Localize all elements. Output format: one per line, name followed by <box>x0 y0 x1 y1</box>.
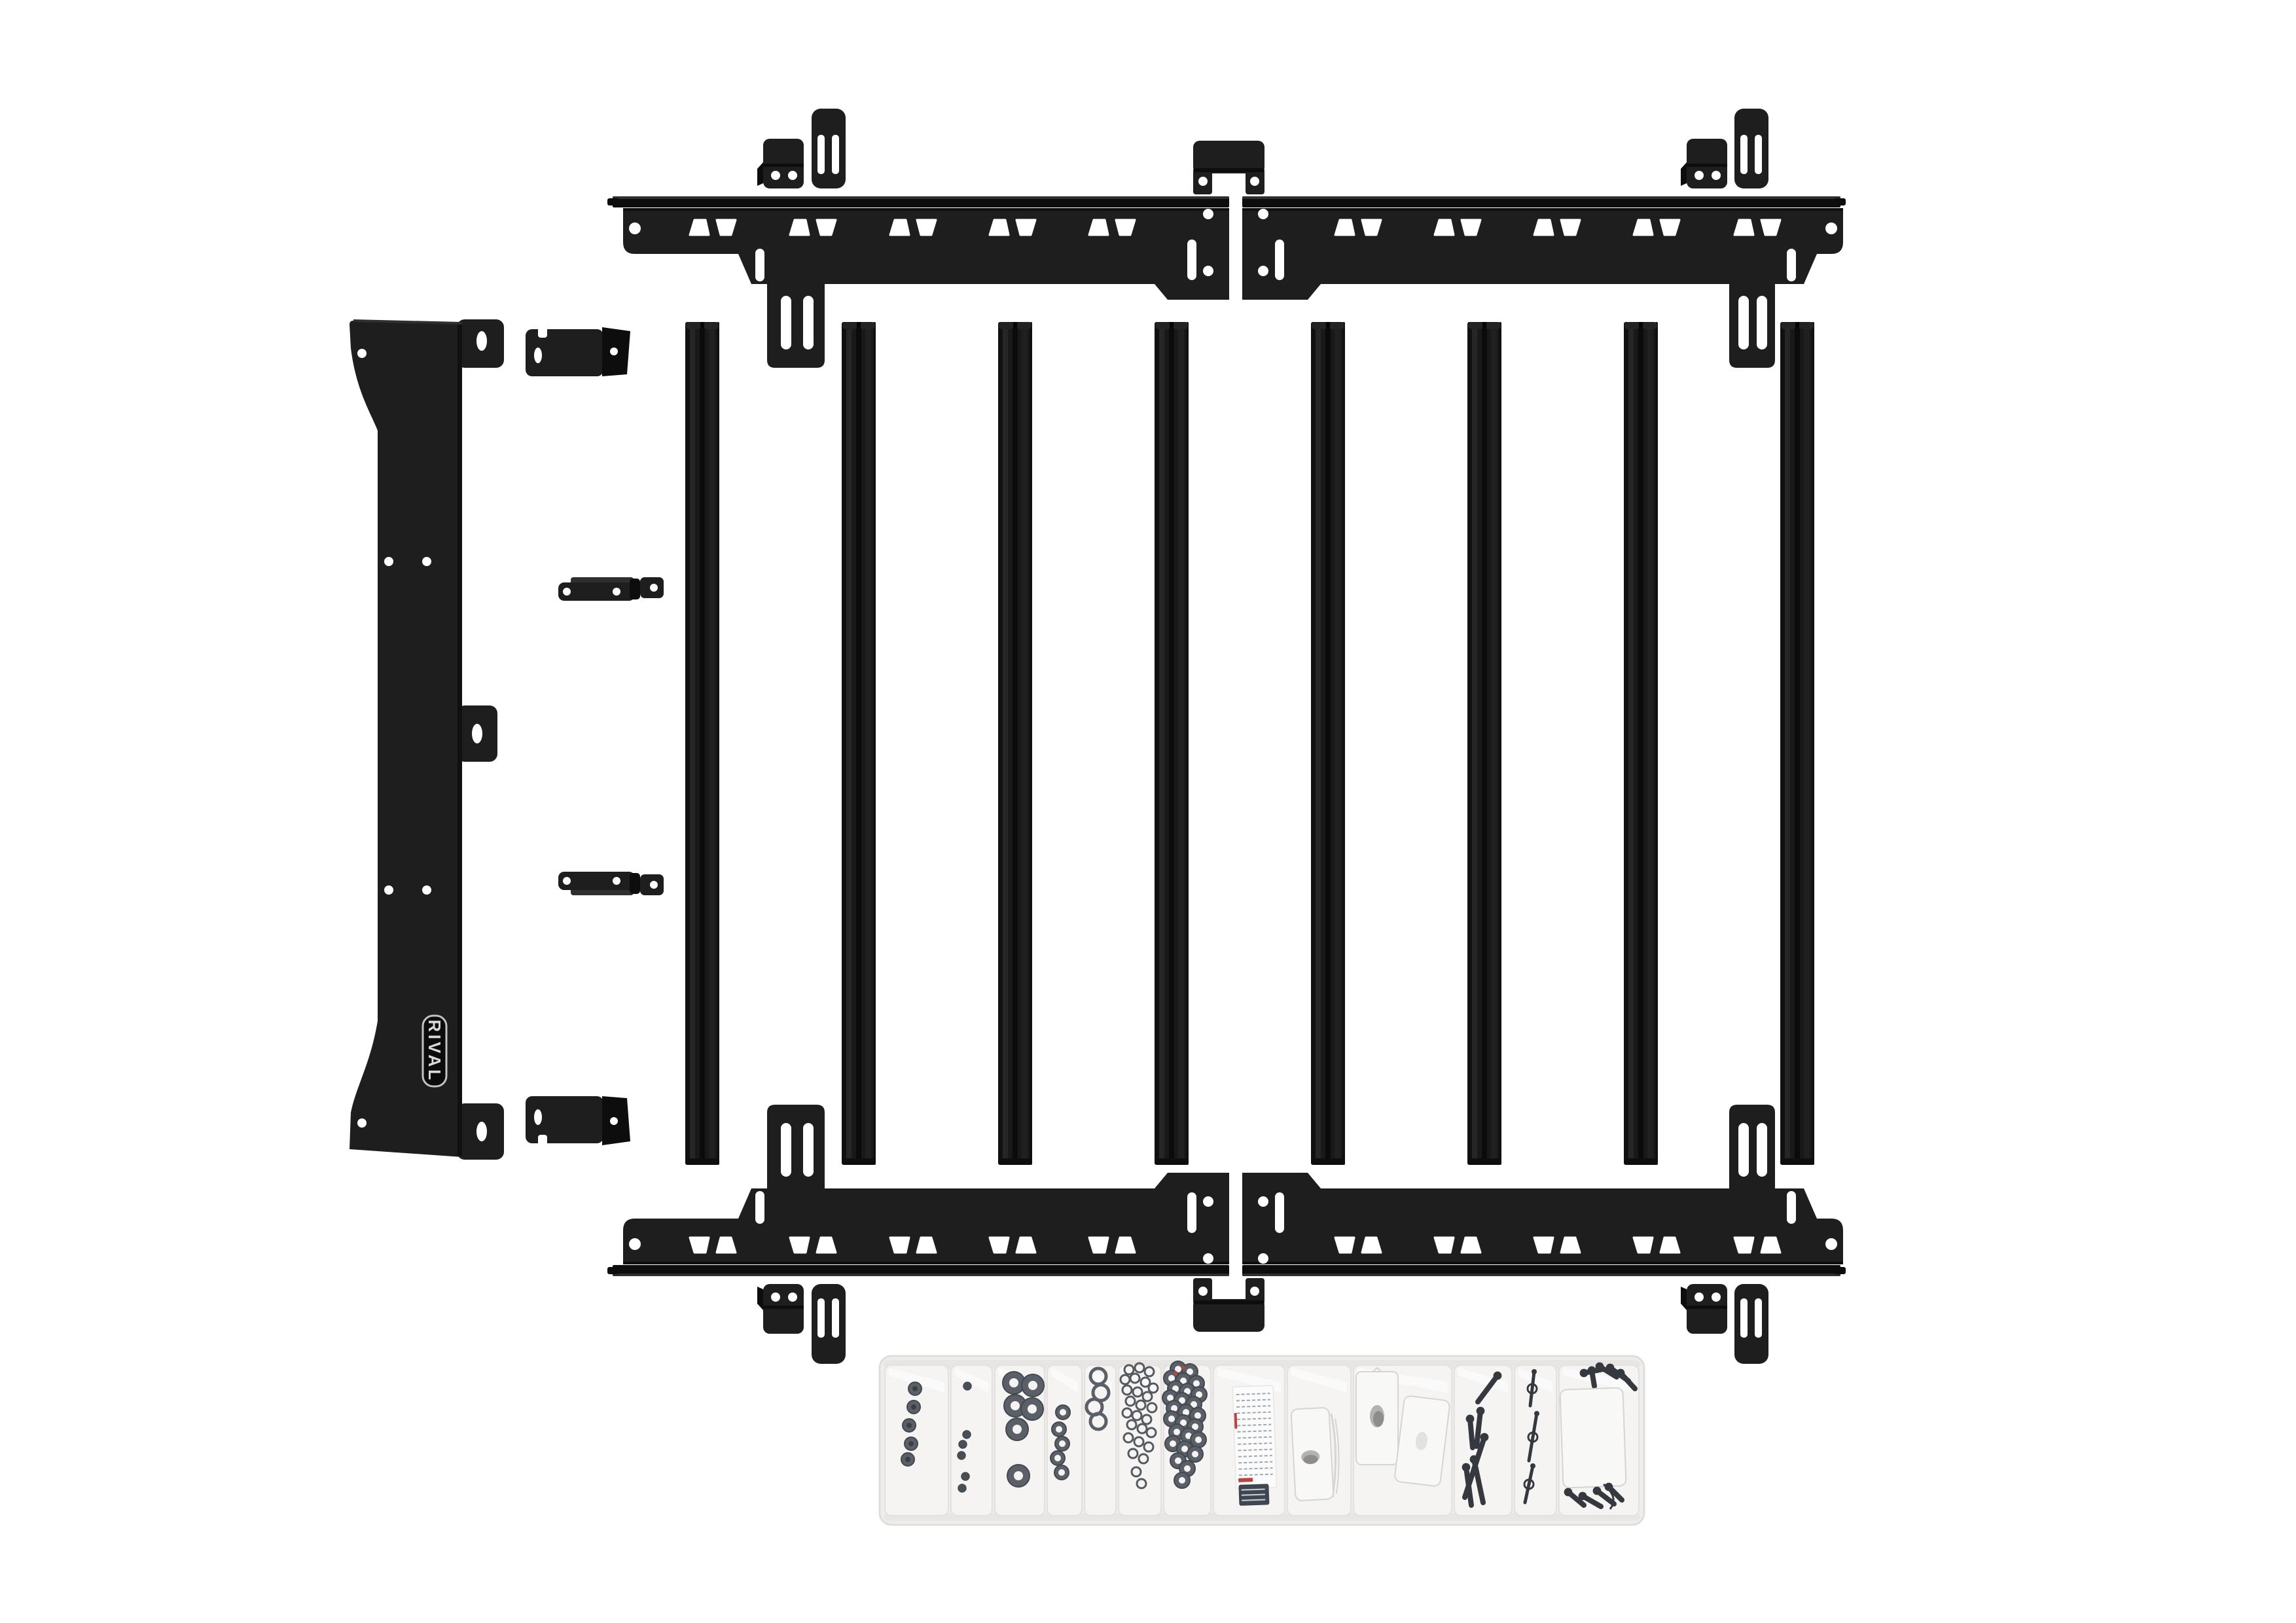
rail-end-hole <box>629 223 641 234</box>
bracket-hole <box>1695 171 1704 180</box>
slotted-strap-bracket <box>812 1284 846 1364</box>
rail-joint-hole <box>1203 1196 1213 1207</box>
slotted-strap-bracket <box>1734 109 1768 188</box>
rail-tab-slot <box>1757 296 1767 349</box>
bracket-notch <box>538 326 547 338</box>
deflector-tab-slot <box>476 331 487 351</box>
rail-slot <box>755 1191 764 1224</box>
tray-compartment-rubber-pads <box>1287 1365 1351 1516</box>
rail-flange-lip <box>1834 198 1846 205</box>
rail-slot <box>1787 1191 1796 1224</box>
tray-compartment-small-fasteners <box>951 1365 992 1516</box>
rail-joint-hole <box>1203 209 1213 219</box>
bar-end-cap <box>1642 322 1657 329</box>
rival-badge-text: RIVAL <box>425 1020 444 1082</box>
deflector-hole <box>357 349 367 358</box>
bracket-hole <box>563 877 571 885</box>
rail-joint-hole <box>1203 1253 1213 1264</box>
rail-flange-lip <box>607 1267 619 1274</box>
bar-end-cap <box>1486 322 1501 329</box>
rail-flange-lip <box>607 198 619 205</box>
bar-end-cap <box>1016 322 1031 329</box>
bar-end-cap <box>842 322 857 329</box>
bracket-hole <box>650 881 658 889</box>
bracket-hole <box>788 1293 797 1302</box>
strap-slot <box>817 135 825 174</box>
bracket-hole <box>650 584 658 592</box>
slotted-strap-bracket <box>1734 1284 1768 1364</box>
tray-compartment-m8-bolts <box>1454 1365 1512 1516</box>
rail-flange-lip <box>1834 1267 1846 1274</box>
rail-joint-hole <box>1258 1253 1268 1264</box>
bar-end-cap <box>1781 322 1796 329</box>
bracket-hole <box>610 348 618 355</box>
product-image: RIVAL <box>0 0 2296 1623</box>
strap-slot <box>817 1298 825 1338</box>
tray-compartment-mounting-plates <box>1354 1365 1452 1516</box>
rail-joint-slot <box>1187 240 1196 280</box>
bar-end-cap <box>1155 322 1170 329</box>
rail-joint-slot <box>1275 1192 1284 1233</box>
tray-compartment-large-washers <box>995 1365 1045 1516</box>
hardware-tray <box>880 1356 1644 1525</box>
rail-tab-slot <box>803 1123 814 1177</box>
rival-badge: RIVAL <box>423 1016 446 1086</box>
bracket-hole <box>563 588 571 596</box>
joiner-hole <box>1250 1287 1259 1296</box>
rail-joint-hole <box>1258 1196 1268 1207</box>
rail-tab-slot <box>1757 1123 1767 1177</box>
rail-tab-slot <box>781 1123 791 1177</box>
bracket-hole <box>1695 1293 1704 1302</box>
rail-joint-hole <box>1258 266 1268 276</box>
bar-end-cap <box>1468 322 1483 329</box>
bracket-hole <box>610 1117 618 1125</box>
tray-compartment-o-rings <box>1119 1363 1161 1516</box>
bracket-hole <box>788 171 797 180</box>
bracket-hole <box>771 1293 780 1302</box>
tray-compartment-pad-and-bolts <box>1559 1363 1639 1516</box>
deflector-tab-slot <box>472 724 482 743</box>
strap-slot <box>832 1298 839 1338</box>
bar-end-cap <box>1312 322 1327 329</box>
square-clamp-bracket <box>757 139 804 188</box>
rail-tab-slot <box>1738 296 1749 349</box>
bar-end-cap <box>1799 322 1814 329</box>
cross-bar <box>1624 322 1658 1165</box>
bar-end-cap <box>999 322 1014 329</box>
rail-end-hole <box>1825 223 1837 234</box>
rail-tab-slot <box>1738 1123 1749 1177</box>
strap-slot <box>1740 1298 1748 1338</box>
rail-end-hole <box>629 1238 641 1250</box>
bracket-hole <box>613 877 620 885</box>
square-clamp-bracket <box>757 1284 804 1334</box>
joiner-hole <box>1250 177 1259 186</box>
tray-compartment-m6-bolts <box>1515 1365 1556 1516</box>
cross-bar <box>1155 322 1189 1165</box>
tray-compartment-flange-nuts <box>885 1365 948 1516</box>
deflector-hole <box>422 885 431 895</box>
deflector-support-bracket-upper <box>558 577 664 601</box>
tray-compartment-small-washers <box>1047 1365 1082 1516</box>
strap-slot <box>1740 135 1748 174</box>
deflector-hole <box>384 885 393 895</box>
joiner-hole <box>1198 177 1208 186</box>
bar-end-cap <box>1624 322 1640 329</box>
strap-slot <box>1755 135 1762 174</box>
strap-slot <box>832 135 839 174</box>
deflector-hole <box>357 1118 367 1128</box>
rail-joint-slot <box>1187 1192 1196 1233</box>
cross-bar <box>842 322 876 1165</box>
bracket-hole <box>771 171 780 180</box>
tray-compartment-washer-pile <box>1162 1361 1211 1516</box>
bar-end-cap <box>860 322 875 329</box>
rail-slot <box>755 249 764 281</box>
rail-end-hole <box>1825 1238 1837 1250</box>
square-clamp-bracket <box>1681 1284 1727 1334</box>
bracket-hole <box>613 588 620 596</box>
bar-end-cap <box>686 322 701 329</box>
cross-bar <box>1780 322 1814 1165</box>
bar-end-cap <box>1329 322 1344 329</box>
tray-compartment-instruction-sheet <box>1213 1365 1285 1516</box>
roof-rack-kit-scene: RIVAL <box>0 0 2296 1623</box>
bracket-oval-hole <box>534 1109 542 1125</box>
tray-compartment-spring-washers <box>1085 1365 1116 1516</box>
rail-tab-slot <box>781 296 791 349</box>
square-clamp-bracket <box>1681 139 1727 188</box>
strap-slot <box>1755 1298 1762 1338</box>
instruction-sheet <box>1232 1385 1277 1506</box>
deflector-hole <box>422 557 431 566</box>
bar-end-cap <box>1173 322 1188 329</box>
rail-slot <box>1787 249 1796 281</box>
deflector-hole <box>384 557 393 566</box>
slotted-strap-bracket <box>812 109 846 188</box>
deflector-mount-bracket-upper <box>526 326 630 376</box>
bracket-hole <box>1712 1293 1721 1302</box>
cross-bar <box>685 322 719 1165</box>
rail-joint-hole <box>1203 266 1213 276</box>
rail-tab-slot <box>803 296 814 349</box>
rail-joint-slot <box>1275 240 1284 280</box>
rail-joint-hole <box>1258 209 1268 219</box>
bracket-hole <box>1712 171 1721 180</box>
bracket-oval-hole <box>534 348 542 363</box>
cross-bar <box>1311 322 1345 1165</box>
deflector-support-bracket-lower <box>558 872 664 895</box>
deflector-tab-slot <box>476 1122 487 1141</box>
deflector-mount-bracket-lower <box>526 1096 630 1147</box>
cross-bar <box>998 322 1032 1165</box>
cross-bar <box>1467 322 1501 1165</box>
bar-end-cap <box>704 322 719 329</box>
bracket-notch <box>538 1135 547 1147</box>
joiner-hole <box>1198 1287 1208 1296</box>
